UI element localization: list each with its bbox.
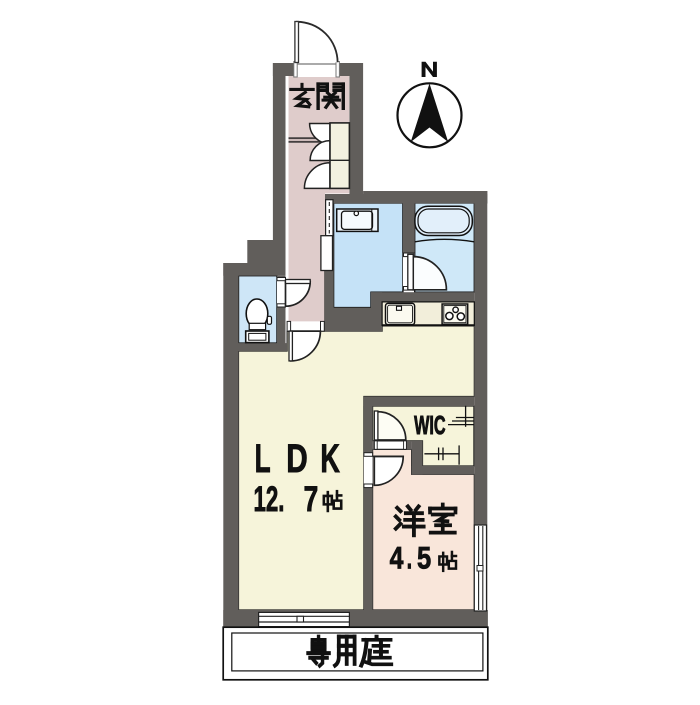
svg-text:12.: 12. <box>254 480 285 519</box>
svg-text:.: . <box>407 540 413 576</box>
svg-text:WIC: WIC <box>414 412 446 440</box>
svg-text:5: 5 <box>417 540 431 576</box>
svg-text:D: D <box>286 437 308 481</box>
svg-text:K: K <box>320 437 340 481</box>
svg-text:7: 7 <box>304 480 319 519</box>
svg-text:L: L <box>255 437 271 481</box>
svg-text:4: 4 <box>390 540 404 576</box>
